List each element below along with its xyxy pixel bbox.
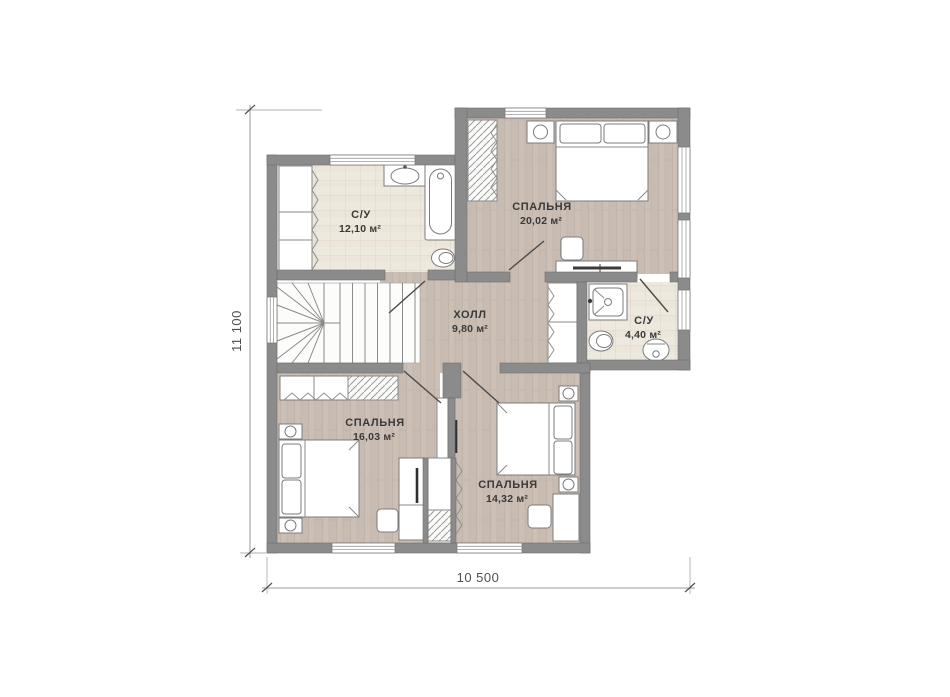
dimension-width: 10 500	[262, 557, 695, 594]
window-icon	[332, 543, 395, 553]
wardrobe-icon	[548, 283, 577, 363]
room-area-bedroom-top: 20,02 м²	[520, 215, 562, 227]
window-icon	[267, 297, 277, 343]
desk-icon	[553, 494, 579, 541]
room-area-bedroom-right: 14,32 м²	[486, 493, 528, 505]
floor-plan-drawing: С/У 12,10 м² СПАЛЬНЯ 20,02 м² ХОЛЛ 9,80 …	[0, 0, 950, 697]
nightstand-icon	[279, 518, 302, 533]
double-bed-icon	[497, 403, 575, 475]
room-label-bathroom-top: С/У	[351, 209, 371, 221]
window-icon	[457, 543, 522, 553]
window-icon	[330, 155, 415, 165]
bathtub-icon	[425, 162, 456, 240]
wardrobe-icon	[279, 166, 312, 272]
wardrobe-icon	[437, 398, 448, 458]
window-icon	[678, 290, 690, 330]
nightstand-icon	[527, 121, 554, 143]
shower-icon	[588, 284, 627, 320]
window-icon	[678, 147, 690, 213]
double-bed-icon	[556, 121, 648, 201]
room-area-hall: 9,80 м²	[452, 323, 488, 335]
nightstand-icon	[559, 386, 578, 401]
toilet-icon	[589, 331, 613, 351]
hatch-panel	[428, 510, 451, 541]
nightstand-icon	[279, 424, 302, 439]
room-label-hall: ХОЛЛ	[453, 309, 486, 321]
chair-icon	[561, 237, 583, 260]
wardrobe-icon	[280, 376, 398, 400]
sink-icon	[643, 339, 669, 361]
double-bed-icon	[279, 440, 359, 517]
window-icon	[505, 108, 546, 118]
height-dimension-label: 11 100	[229, 310, 244, 352]
width-dimension-label: 10 500	[457, 570, 500, 585]
toilet-icon	[432, 249, 455, 267]
room-label-bedroom-right: СПАЛЬНЯ	[478, 479, 538, 491]
room-area-bedroom-left: 16,03 м²	[353, 431, 395, 443]
floor-plan-canvas: С/У 12,10 м² СПАЛЬНЯ 20,02 м² ХОЛЛ 9,80 …	[0, 0, 950, 697]
window-icon	[678, 220, 690, 278]
room-area-bathroom-small: 4,40 м²	[625, 329, 661, 341]
desk-icon	[399, 458, 424, 540]
room-label-bathroom-small: С/У	[634, 315, 654, 327]
sink-icon	[384, 163, 427, 186]
room-area-bathroom-top: 12,10 м²	[339, 223, 381, 235]
chair-icon	[377, 509, 398, 532]
room-label-bedroom-top: СПАЛЬНЯ	[512, 201, 572, 213]
nightstand-icon	[649, 121, 677, 143]
chair-icon	[528, 505, 551, 528]
room-label-bedroom-left: СПАЛЬНЯ	[345, 417, 405, 429]
nightstand-icon	[559, 477, 578, 492]
